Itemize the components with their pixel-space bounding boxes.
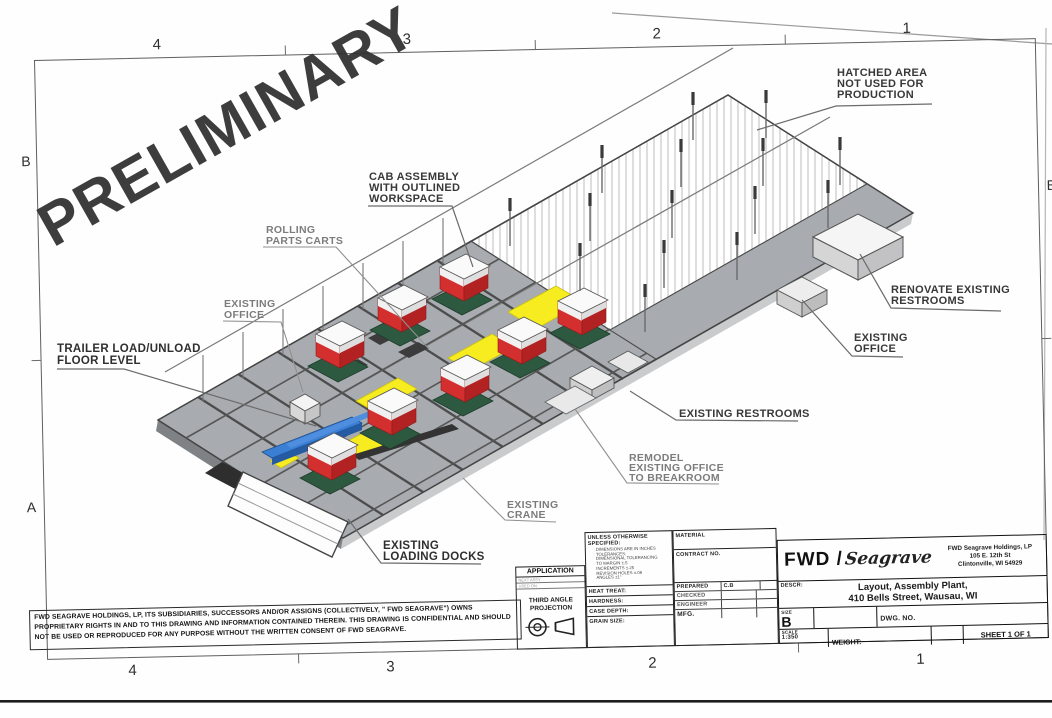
existing-crane-label: CRANE xyxy=(507,509,546,521)
rolling-carts-label: PARTS CARTS xyxy=(266,235,343,247)
trailer-load-label: TRAILER LOAD/UNLOAD xyxy=(57,343,201,355)
hatched-area-label: PRODUCTION xyxy=(837,89,914,101)
existing-office-right-label: OFFICE xyxy=(854,343,896,355)
loading-docks-label: LOADING DOCKS xyxy=(383,551,485,563)
cab-assembly-label: WORKSPACE xyxy=(369,193,444,205)
existing-office-left-label: OFFICE xyxy=(224,309,264,321)
trailer-load-label: FLOOR LEVEL xyxy=(57,355,141,367)
remodel-office-label: TO BREAKROOM xyxy=(629,472,720,484)
plant-layout-drawing: HATCHED AREA NOT USED FOR PRODUCTION CAB… xyxy=(0,0,1052,718)
renovate-restrooms-label: RESTROOMS xyxy=(891,295,965,307)
existing-restrooms-label: EXISTING RESTROOMS xyxy=(679,408,810,420)
scanned-drawing-page: 4 3 2 1 4 3 2 1 B A B A FWD SEAGRAVE HOL… xyxy=(0,0,1052,718)
